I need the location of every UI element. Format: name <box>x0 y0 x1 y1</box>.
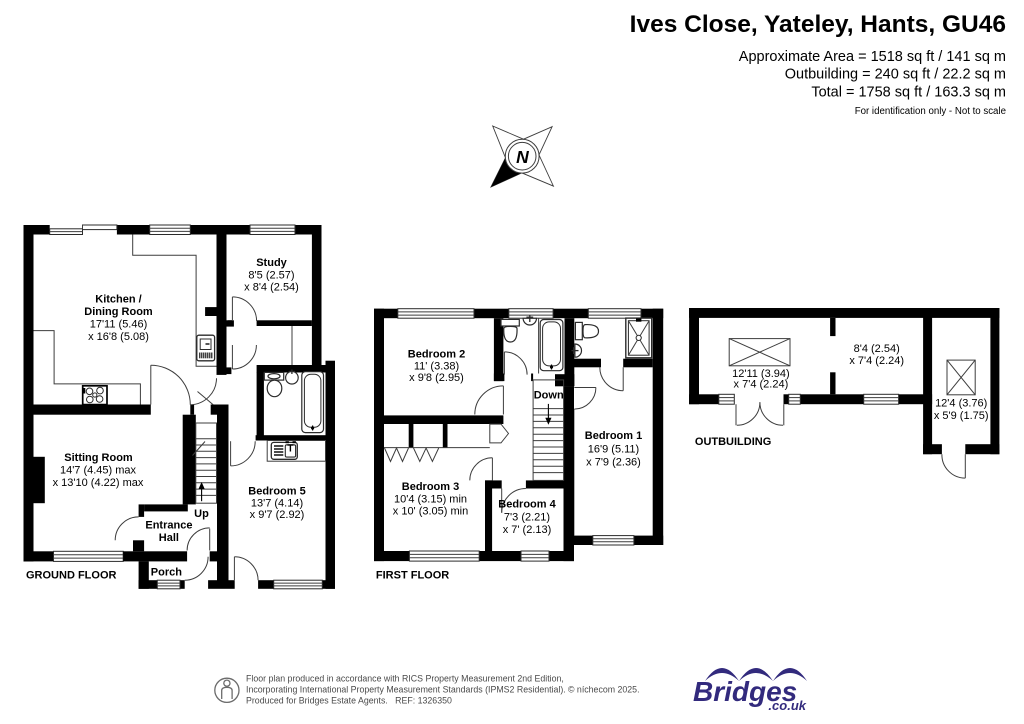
svg-text:Bedroom 2: Bedroom 2 <box>408 349 465 361</box>
svg-text:Dining Room: Dining Room <box>84 306 153 318</box>
svg-text:8'5 (2.57): 8'5 (2.57) <box>248 269 294 281</box>
svg-text:Incorporating International Pr: Incorporating International Property Mea… <box>246 685 566 695</box>
svg-text:.co.uk: .co.uk <box>768 698 806 713</box>
svg-text:Entrance: Entrance <box>145 520 192 532</box>
svg-text:Outbuilding = 240 sq ft / 22.2: Outbuilding = 240 sq ft / 22.2 sq m <box>785 67 1006 83</box>
svg-text:x 7'9 (2.36): x 7'9 (2.36) <box>586 457 641 469</box>
svg-text:x 7' (2.13): x 7' (2.13) <box>503 524 552 536</box>
svg-text:Bedroom 4: Bedroom 4 <box>498 499 556 511</box>
svg-text:x 10' (3.05) min: x 10' (3.05) min <box>393 506 468 518</box>
svg-text:Up: Up <box>194 508 209 520</box>
svg-text:11' (3.38): 11' (3.38) <box>414 360 459 372</box>
svg-text:N: N <box>516 147 529 167</box>
svg-text:x 5'9 (1.75): x 5'9 (1.75) <box>934 410 989 422</box>
svg-text:Hall: Hall <box>159 532 179 544</box>
svg-text:© níchecom 2025.: © níchecom 2025. <box>568 685 640 695</box>
svg-text:Floor plan produced in accorda: Floor plan produced in accordance with R… <box>246 674 564 684</box>
svg-text:Ives Close, Yateley, Hants, GU: Ives Close, Yateley, Hants, GU46 <box>630 11 1006 38</box>
svg-text:x 7'4 (2.24): x 7'4 (2.24) <box>734 379 789 391</box>
svg-text:14'7 (4.45) max: 14'7 (4.45) max <box>60 465 137 477</box>
svg-text:Bedroom 1: Bedroom 1 <box>585 430 642 442</box>
svg-text:Total = 1758 sq ft / 163.3 sq: Total = 1758 sq ft / 163.3 sq m <box>811 84 1006 100</box>
svg-text:x 9'8 (2.95): x 9'8 (2.95) <box>409 372 464 384</box>
svg-text:Down: Down <box>534 390 564 402</box>
svg-text:x 13'10 (4.22) max: x 13'10 (4.22) max <box>53 477 144 489</box>
svg-text:7'3 (2.21): 7'3 (2.21) <box>504 511 550 523</box>
svg-text:OUTBUILDING: OUTBUILDING <box>695 436 771 448</box>
svg-text:x 8'4 (2.54): x 8'4 (2.54) <box>244 282 299 294</box>
svg-text:12'4 (3.76): 12'4 (3.76) <box>935 398 987 410</box>
svg-text:Kitchen /: Kitchen / <box>95 293 141 305</box>
svg-text:x 16'8 (5.08): x 16'8 (5.08) <box>88 331 149 343</box>
svg-text:Study: Study <box>256 257 287 269</box>
svg-text:Porch: Porch <box>151 567 182 579</box>
svg-text:13'7 (4.14): 13'7 (4.14) <box>251 497 303 509</box>
svg-text:Approximate Area = 1518 sq ft: Approximate Area = 1518 sq ft / 141 sq m <box>739 49 1006 65</box>
svg-text:17'11 (5.46): 17'11 (5.46) <box>90 318 148 330</box>
svg-text:x 9'7 (2.92): x 9'7 (2.92) <box>250 509 305 521</box>
svg-text:GROUND FLOOR: GROUND FLOOR <box>26 569 116 581</box>
svg-text:10'4 (3.15) min: 10'4 (3.15) min <box>394 493 467 505</box>
svg-text:16'9 (5.11): 16'9 (5.11) <box>588 444 639 456</box>
svg-text:Bedroom 3: Bedroom 3 <box>402 481 459 493</box>
svg-text:Produced for Bridges Estate Ag: Produced for Bridges Estate Agents. REF:… <box>246 696 452 706</box>
svg-text:8'4 (2.54): 8'4 (2.54) <box>854 343 900 355</box>
svg-text:x 7'4 (2.24): x 7'4 (2.24) <box>849 355 904 367</box>
svg-text:Bedroom 5: Bedroom 5 <box>248 486 305 498</box>
svg-text:For identification only - Not: For identification only - Not to scale <box>855 106 1006 117</box>
svg-text:Sitting Room: Sitting Room <box>64 452 133 464</box>
svg-text:FIRST FLOOR: FIRST FLOOR <box>376 570 449 582</box>
